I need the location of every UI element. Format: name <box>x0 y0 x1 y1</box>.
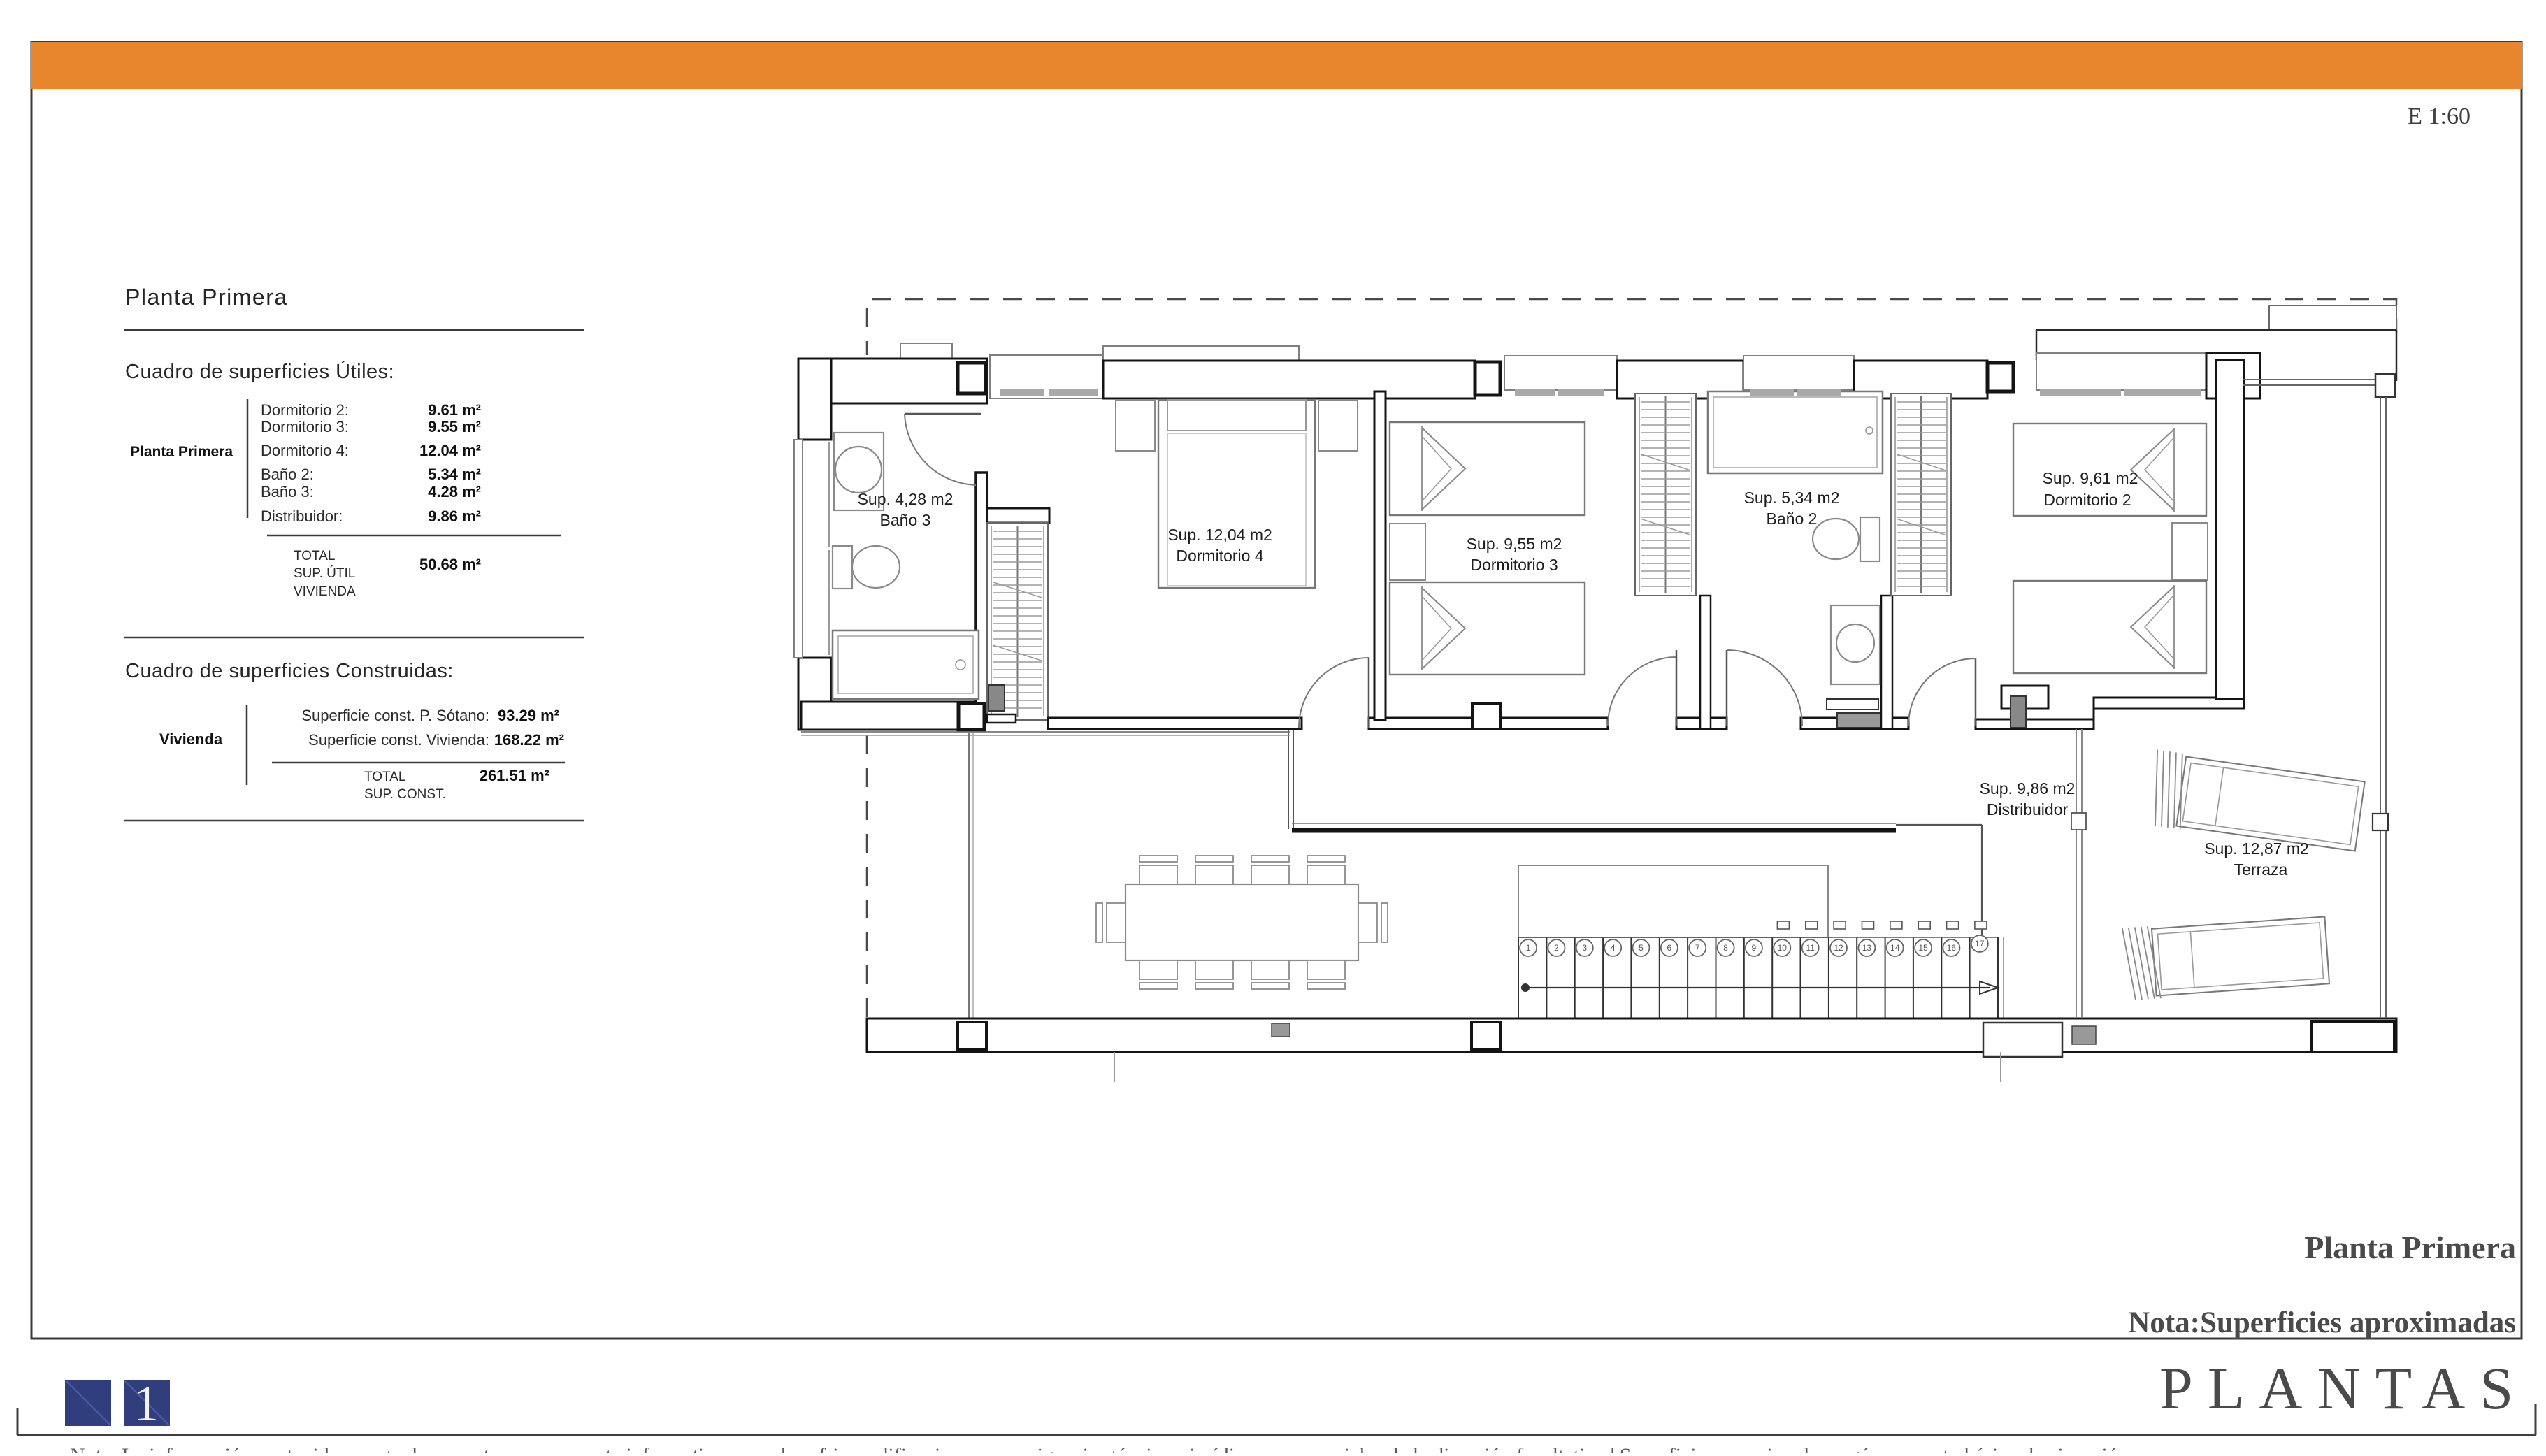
svg-text:Planta Primera: Planta Primera <box>125 284 288 310</box>
svg-text:Baño 2: Baño 2 <box>1767 510 1818 528</box>
svg-text:Dormitorio 2: Dormitorio 2 <box>2043 491 2131 509</box>
svg-text:Baño 3: Baño 3 <box>880 511 931 529</box>
svg-text:4: 4 <box>1611 943 1616 953</box>
svg-text:SUP. ÚTIL: SUP. ÚTIL <box>294 565 355 581</box>
svg-text:168.22 m²: 168.22 m² <box>494 731 564 749</box>
svg-text:Planta Primera: Planta Primera <box>130 444 233 460</box>
svg-text:17: 17 <box>1975 939 1985 949</box>
svg-text:Dormitorio 2:: Dormitorio 2: <box>261 401 349 419</box>
svg-text:Dormitorio 4:: Dormitorio 4: <box>261 442 349 459</box>
svg-text:3: 3 <box>1582 943 1587 953</box>
svg-text:1: 1 <box>1526 943 1531 953</box>
svg-text:VIVIENDA: VIVIENDA <box>294 584 356 599</box>
svg-text:9: 9 <box>1752 943 1757 953</box>
svg-text:Sup. 4,28 m2: Sup. 4,28 m2 <box>858 490 954 508</box>
svg-text:12.04 m²: 12.04 m² <box>419 442 481 459</box>
svg-text:5.34 m²: 5.34 m² <box>428 466 481 483</box>
svg-text:Superficie const. Vivienda:: Superficie const. Vivienda: <box>308 731 489 749</box>
svg-text:SUP. CONST.: SUP. CONST. <box>364 787 446 802</box>
svg-text:Sup. 9,61 m2: Sup. 9,61 m2 <box>2043 469 2138 487</box>
svg-text:Nota: La información contenida: Nota: La información contenida en este d… <box>70 1444 2129 1453</box>
svg-text:Sup. 5,34 m2: Sup. 5,34 m2 <box>1744 489 1840 507</box>
svg-text:Cuadro de superficies Útiles:: Cuadro de superficies Útiles: <box>125 360 394 383</box>
svg-text:261.51 m²: 261.51 m² <box>480 767 549 784</box>
svg-text:E 1:60: E 1:60 <box>2408 103 2471 129</box>
svg-text:Cuadro de superficies Construi: Cuadro de superficies Construidas: <box>125 660 454 682</box>
svg-text:Sup. 9,86 m2: Sup. 9,86 m2 <box>1980 779 2076 798</box>
svg-text:4.28 m²: 4.28 m² <box>428 483 481 500</box>
svg-text:Distribuidor: Distribuidor <box>1987 800 2069 819</box>
svg-text:9.61 m²: 9.61 m² <box>428 401 481 419</box>
svg-text:Vivienda: Vivienda <box>159 730 223 748</box>
svg-text:2: 2 <box>1554 943 1559 953</box>
svg-text:11: 11 <box>1806 943 1815 953</box>
svg-text:8: 8 <box>1723 943 1728 953</box>
svg-text:Baño 3:: Baño 3: <box>261 483 314 500</box>
svg-text:50.68 m²: 50.68 m² <box>419 556 481 573</box>
svg-text:1: 1 <box>134 1376 159 1432</box>
svg-text:Superficie const. P. Sótano:: Superficie const. P. Sótano: <box>301 707 489 724</box>
svg-text:Sup. 12,04 m2: Sup. 12,04 m2 <box>1167 526 1272 544</box>
svg-text:7: 7 <box>1695 943 1700 953</box>
svg-text:Nota:Superficies aproximadas: Nota:Superficies aproximadas <box>2128 1306 2516 1339</box>
svg-text:Dormitorio 4: Dormitorio 4 <box>1176 547 1263 565</box>
svg-text:TOTAL: TOTAL <box>294 549 335 563</box>
svg-text:Baño 2:: Baño 2: <box>261 466 314 483</box>
svg-text:5: 5 <box>1639 943 1644 953</box>
svg-text:Dormitorio 3:: Dormitorio 3: <box>261 418 349 435</box>
svg-text:16: 16 <box>1947 943 1957 953</box>
svg-text:10: 10 <box>1778 943 1788 953</box>
svg-text:13: 13 <box>1862 943 1872 953</box>
svg-text:Sup. 12,87 m2: Sup. 12,87 m2 <box>2204 839 2309 858</box>
svg-text:6: 6 <box>1667 943 1672 953</box>
svg-text:9.55 m²: 9.55 m² <box>428 418 481 435</box>
svg-text:Distribuidor:: Distribuidor: <box>261 507 343 525</box>
svg-text:TOTAL: TOTAL <box>364 770 405 784</box>
svg-text:93.29 m²: 93.29 m² <box>498 707 559 724</box>
svg-text:15: 15 <box>1918 943 1928 953</box>
svg-text:PLANTAS: PLANTAS <box>2159 1355 2528 1422</box>
svg-text:Dormitorio 3: Dormitorio 3 <box>1470 556 1558 574</box>
svg-text:14: 14 <box>1890 943 1900 953</box>
svg-text:Terraza: Terraza <box>2234 860 2288 879</box>
svg-text:9.86 m²: 9.86 m² <box>428 507 481 525</box>
svg-text:Planta Primera: Planta Primera <box>2304 1230 2516 1265</box>
svg-text:Sup. 9,55 m2: Sup. 9,55 m2 <box>1467 535 1562 553</box>
svg-text:12: 12 <box>1834 943 1843 953</box>
